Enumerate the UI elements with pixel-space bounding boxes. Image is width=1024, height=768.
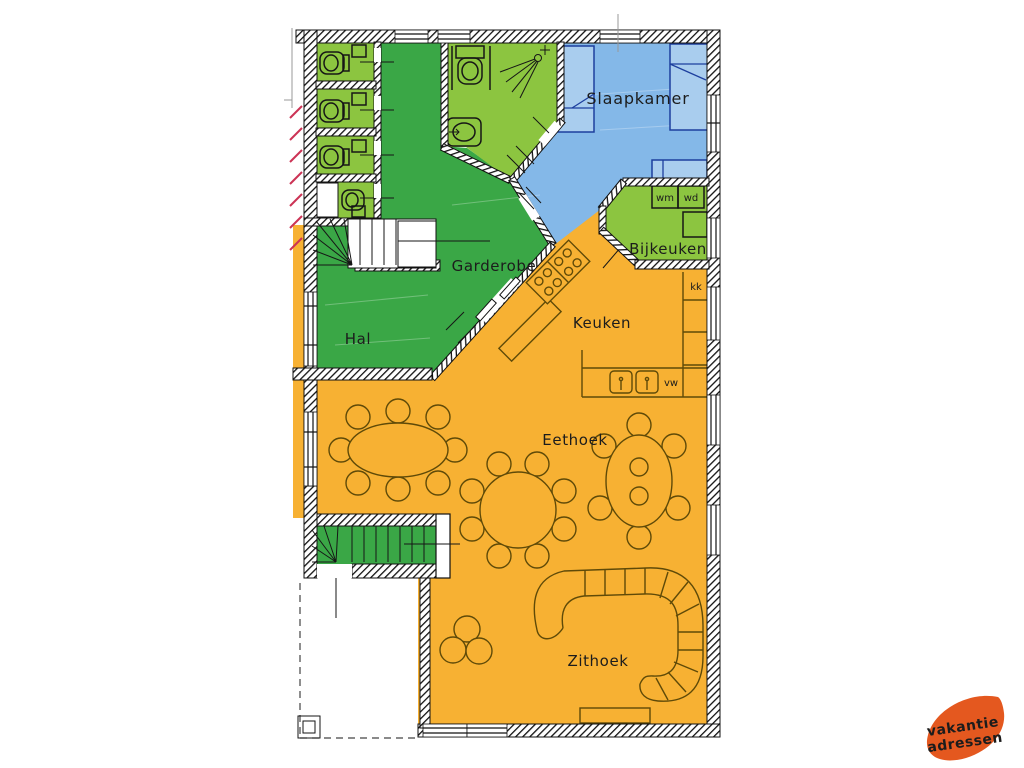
label-eethoek: Eethoek	[542, 431, 607, 449]
label-bijkeuken: Bijkeuken	[629, 240, 707, 258]
bed-icon	[670, 44, 708, 130]
label-garderobe: Garderobe	[452, 257, 537, 275]
closet	[316, 183, 338, 217]
floorplan-svg: Slaapkamer Bijkeuken Garderobe Hal Keuke…	[0, 0, 1024, 768]
label-hal: Hal	[345, 330, 371, 348]
label-wd: wd	[684, 193, 699, 204]
terrace-area	[280, 578, 418, 750]
label-kk: kk	[690, 282, 702, 293]
floorplan-image: Slaapkamer Bijkeuken Garderobe Hal Keuke…	[0, 0, 1024, 768]
label-wm: wm	[656, 193, 674, 204]
label-vw: vw	[664, 378, 678, 389]
label-keuken: Keuken	[573, 314, 631, 332]
label-zithoek: Zithoek	[567, 652, 628, 670]
label-slaapkamer: Slaapkamer	[586, 89, 689, 108]
dining-table-oval	[329, 399, 467, 501]
